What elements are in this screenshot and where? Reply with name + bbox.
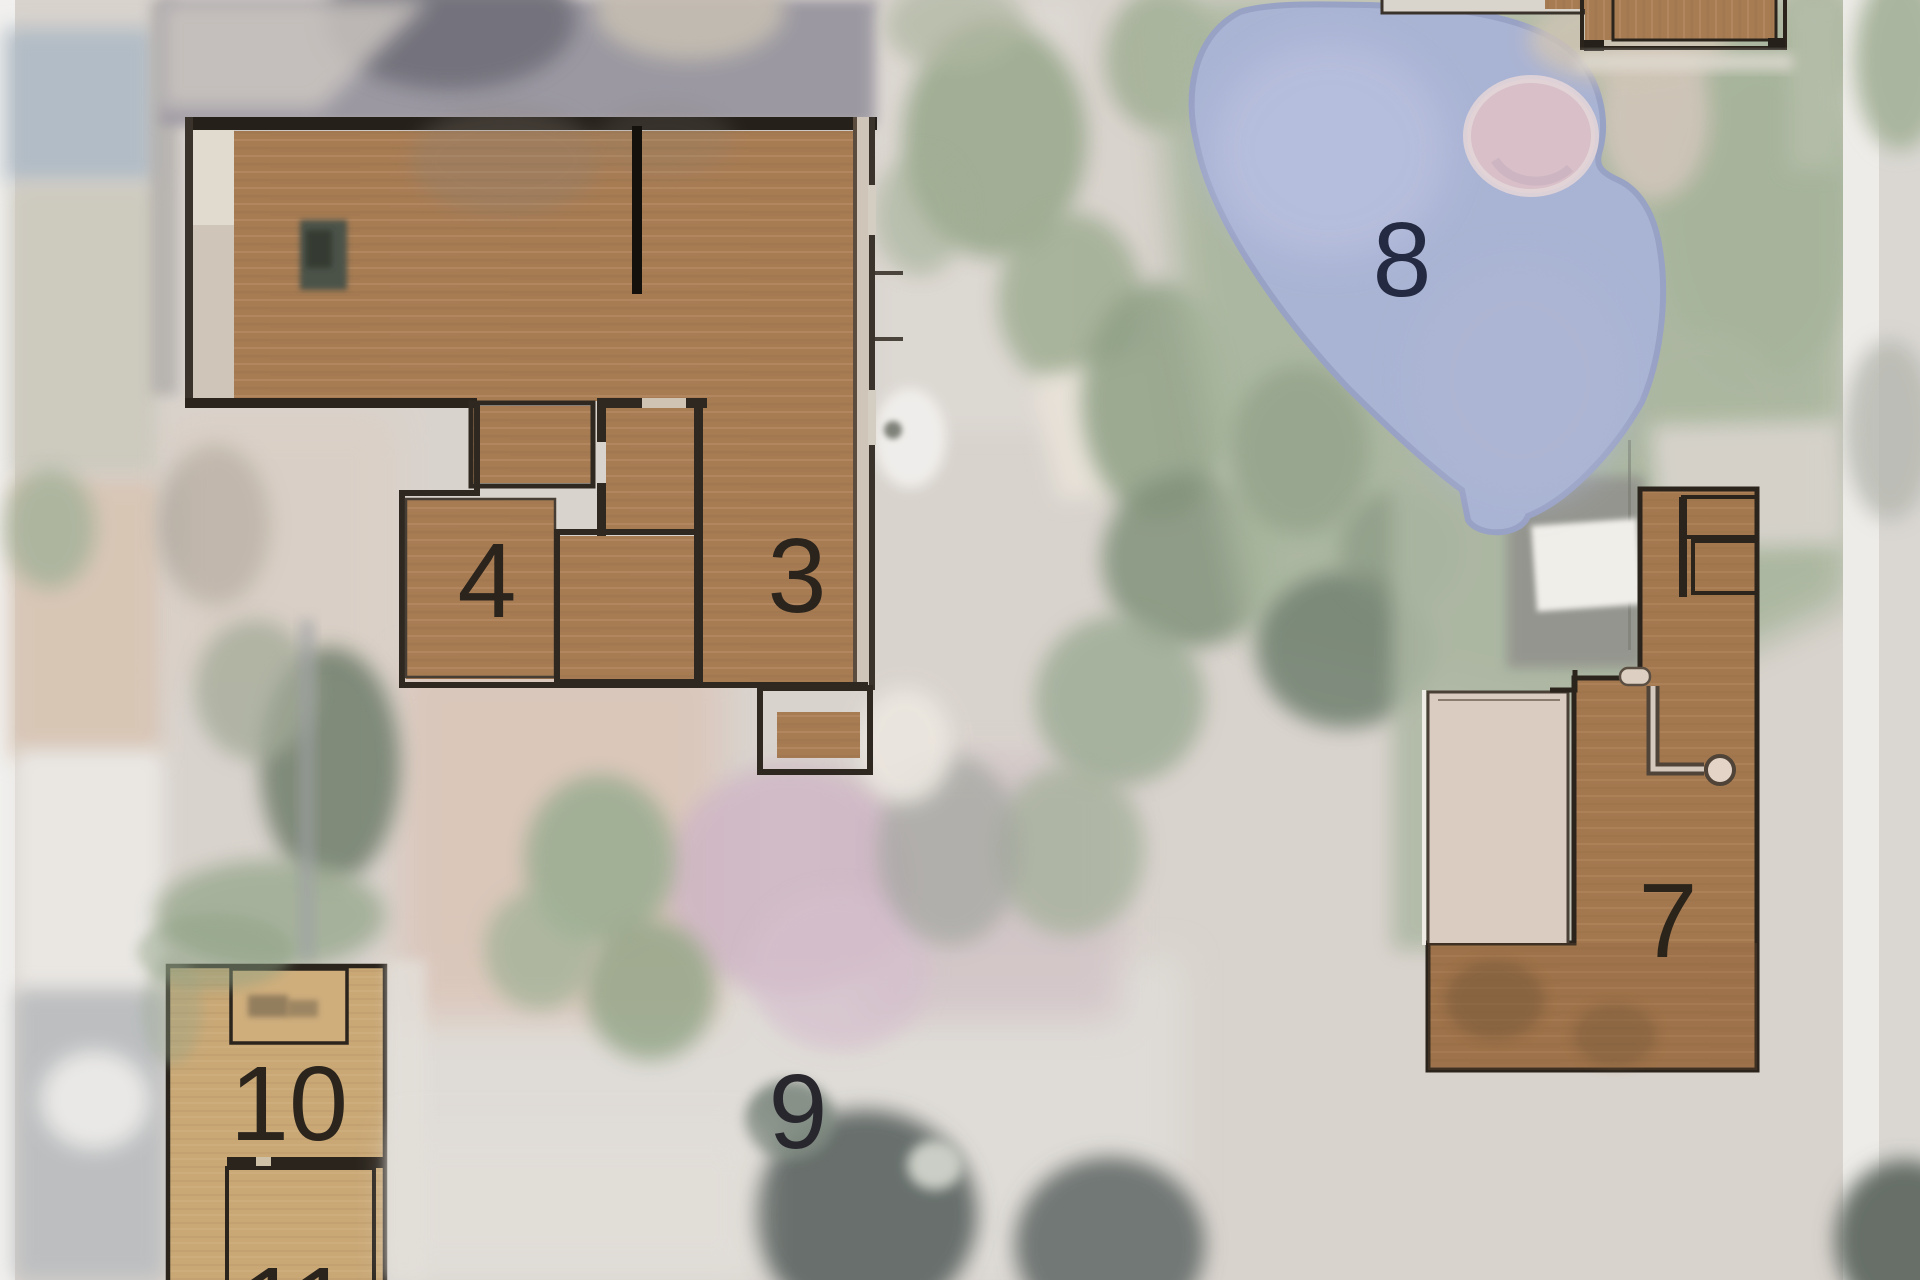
svg-text:11: 11 [241,1246,351,1280]
svg-text:3: 3 [768,517,827,635]
svg-text:4: 4 [458,522,517,640]
svg-text:7: 7 [1639,862,1698,980]
svg-text:9: 9 [769,1053,828,1171]
svg-text:10: 10 [230,1045,348,1163]
svg-text:8: 8 [1373,201,1432,319]
